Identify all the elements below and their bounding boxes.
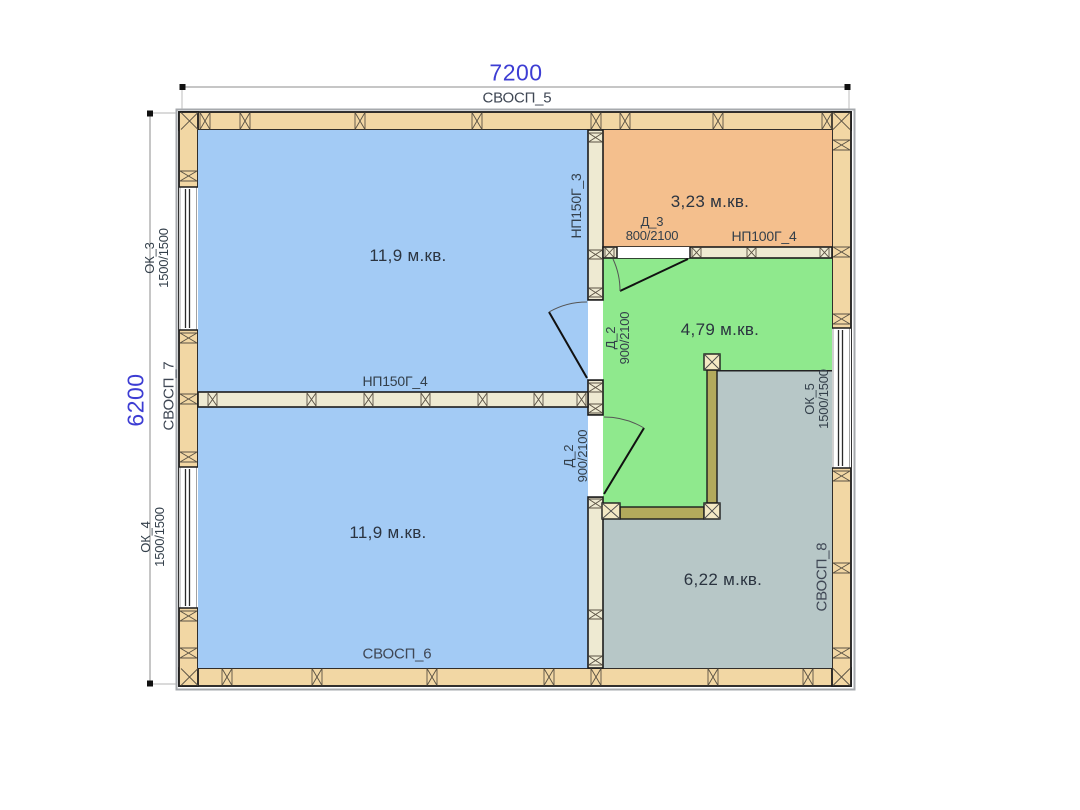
room-lower-left-area: 11,9 м.кв. [349, 523, 426, 543]
window-ok5-label: ОК_5 1500/1500 [803, 369, 831, 429]
partition-storage-label: НП100Г_4 [731, 228, 796, 244]
wall-top-label: СВОСП_5 [483, 90, 552, 107]
partition-middle-label: НП150Г_4 [362, 373, 427, 389]
dim-marker [147, 111, 153, 117]
window-ok3-label: ОК_3 1500/1500 [143, 228, 171, 288]
wall-right-label: СВОСП_8 [814, 543, 831, 612]
partition-vertical-label: НП150Г_3 [568, 173, 584, 238]
room-upper-right-area: 3,23 м.кв. [671, 192, 749, 212]
room-hall-leg[interactable] [603, 370, 707, 509]
wall-bottom[interactable] [179, 668, 851, 686]
partition-middle[interactable] [198, 392, 588, 407]
window-ok3[interactable] [179, 187, 198, 330]
thin-wall-horizontal[interactable] [620, 507, 704, 519]
dimension-width: 7200 [489, 60, 542, 87]
room-hall-top[interactable] [603, 258, 832, 370]
partition-vertical-bottom[interactable] [588, 497, 603, 668]
dim-marker [147, 681, 153, 687]
room-upper-left-area: 11,9 м.кв. [369, 246, 446, 266]
thin-wall-vertical[interactable] [707, 370, 717, 503]
floor-plan-canvas: 7200 6200 СВОСП_5 СВОСП_6 СВОСП_7 СВОСП_… [0, 0, 1080, 810]
room-lower-right-area: 6,22 м.кв. [684, 570, 762, 590]
wall-left-label: СВОСП_7 [161, 362, 178, 431]
door-d3-label: Д_3 800/2100 [626, 215, 679, 243]
partition-vertical-mid[interactable] [588, 380, 603, 415]
window-ok4-label: ОК_4 1500/1500 [139, 507, 167, 567]
door-d2-upper-label: Д_2 900/2100 [604, 312, 632, 365]
window-ok4[interactable] [179, 467, 198, 608]
partition-vertical-top[interactable] [588, 130, 603, 300]
dim-marker [845, 84, 851, 90]
door-d2-lower-label: Д_2 900/2100 [562, 430, 590, 483]
room-hall-area: 4,79 м.кв. [681, 320, 759, 340]
dimension-height: 6200 [123, 373, 150, 426]
wall-bottom-label: СВОСП_6 [363, 646, 432, 663]
window-ok5[interactable] [832, 328, 851, 468]
dim-marker [180, 84, 186, 90]
wall-top[interactable] [179, 112, 851, 130]
